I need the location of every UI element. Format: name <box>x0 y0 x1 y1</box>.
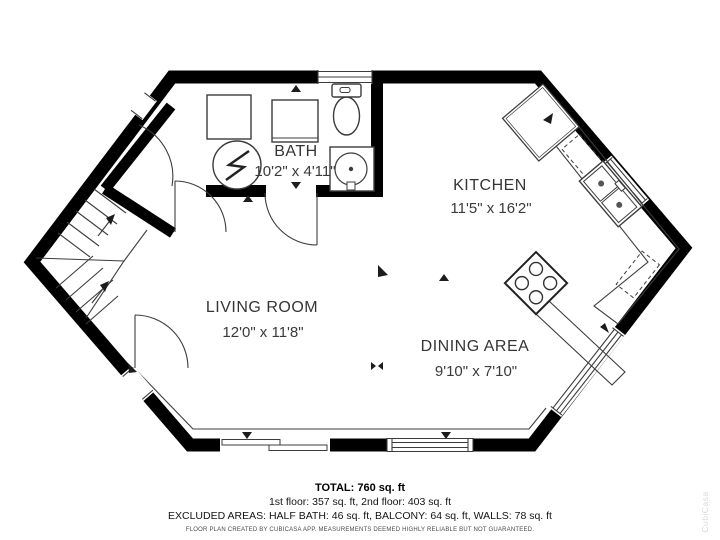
sliding-door <box>220 438 330 452</box>
marker-cursor-icon <box>378 265 388 277</box>
marker-up-icon <box>291 85 301 92</box>
floor-plan-page: BATH 10'2" x 4'11" KITCHEN 11'5" x 16'2"… <box>0 0 720 540</box>
toilet-icon <box>332 84 361 135</box>
marker-bowtie-icon <box>378 362 383 370</box>
bath-label: BATH <box>274 143 317 160</box>
marker-cursor-icon <box>128 363 137 373</box>
stairs-divider <box>36 258 124 261</box>
summary-floors: 1st floor: 357 sq. ft, 2nd floor: 403 sq… <box>269 496 451 508</box>
bathroom-sink-icon <box>330 147 374 191</box>
stair-steps-lower <box>56 256 118 324</box>
bath-door-arc <box>265 193 317 245</box>
inner-face-line <box>138 372 546 429</box>
marker-bowtie-icon <box>371 362 376 370</box>
stair-arrow-up-icon <box>92 281 109 303</box>
kitchen-dims: 11'5" x 16'2" <box>450 200 531 217</box>
watermark: CubiCasa <box>700 491 710 532</box>
window-top <box>318 70 372 84</box>
marker-down-icon <box>242 432 252 439</box>
fridge-icon <box>503 84 580 161</box>
window-lower-right <box>549 326 625 417</box>
stove-icon <box>505 252 567 314</box>
living-room-dims: 12'0" x 11'8" <box>222 324 303 341</box>
summary-excluded: EXCLUDED AREAS: HALF BATH: 46 sq. ft, BA… <box>168 510 552 522</box>
marker-down-icon <box>291 182 301 189</box>
marker-up-icon <box>439 274 449 281</box>
marker-cursor-icon <box>600 323 609 333</box>
kitchen-label: KITCHEN <box>453 177 527 194</box>
disclaimer: FLOOR PLAN CREATED BY CUBICASA APP. MEAS… <box>186 527 534 533</box>
window-bottom <box>387 438 473 452</box>
dining-area-dims: 9'10" x 7'10" <box>435 363 517 380</box>
bath-dims: 10'2" x 4'11" <box>254 163 335 180</box>
entry-door-arc <box>135 315 188 368</box>
floor-plan-svg: BATH 10'2" x 4'11" KITCHEN 11'5" x 16'2"… <box>0 0 720 540</box>
washer-icon <box>207 95 251 139</box>
outer-wall <box>32 77 684 445</box>
stair-wall-lower <box>105 189 173 233</box>
stair-arrow-up-icon <box>98 214 115 236</box>
living-room-label: LIVING ROOM <box>206 299 318 316</box>
summary-total: TOTAL: 760 sq. ft <box>315 482 405 494</box>
dining-area-label: DINING AREA <box>421 338 530 355</box>
shower-icon <box>272 100 318 142</box>
